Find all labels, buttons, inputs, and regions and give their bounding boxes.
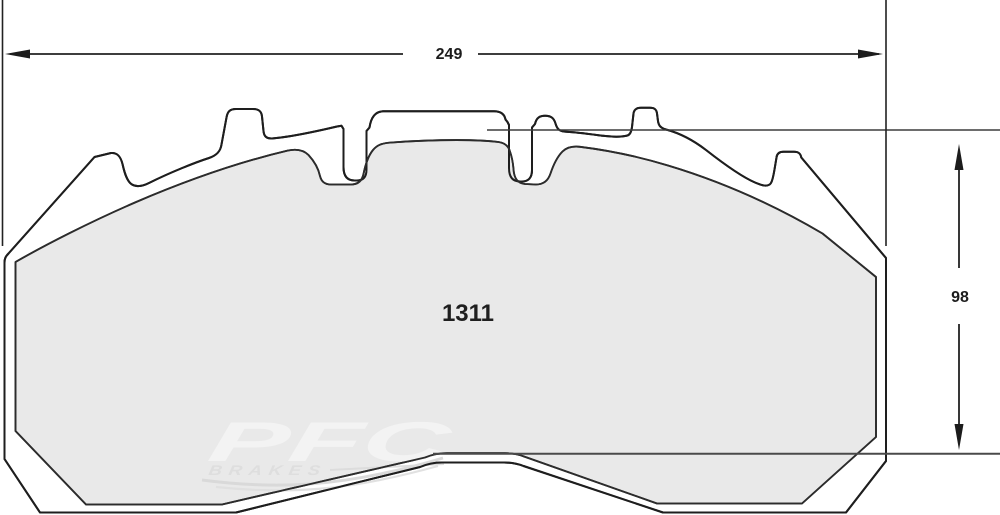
height-dimension-label: 98 xyxy=(951,289,969,306)
height-dimension: 98 xyxy=(951,144,969,450)
width-dimension-label: 249 xyxy=(436,46,463,63)
up-arrowhead-icon xyxy=(955,144,964,170)
right-arrowhead-icon xyxy=(858,50,883,59)
left-arrowhead-icon xyxy=(5,50,30,59)
drawing-canvas: PFC BRAKES 249 98 xyxy=(0,0,1000,515)
part-number-label: 1311 xyxy=(442,300,494,327)
watermark-sub-text: BRAKES xyxy=(207,462,328,478)
brake-pad-technical-drawing: PFC BRAKES 249 98 xyxy=(0,0,1000,515)
down-arrowhead-icon xyxy=(955,424,964,450)
